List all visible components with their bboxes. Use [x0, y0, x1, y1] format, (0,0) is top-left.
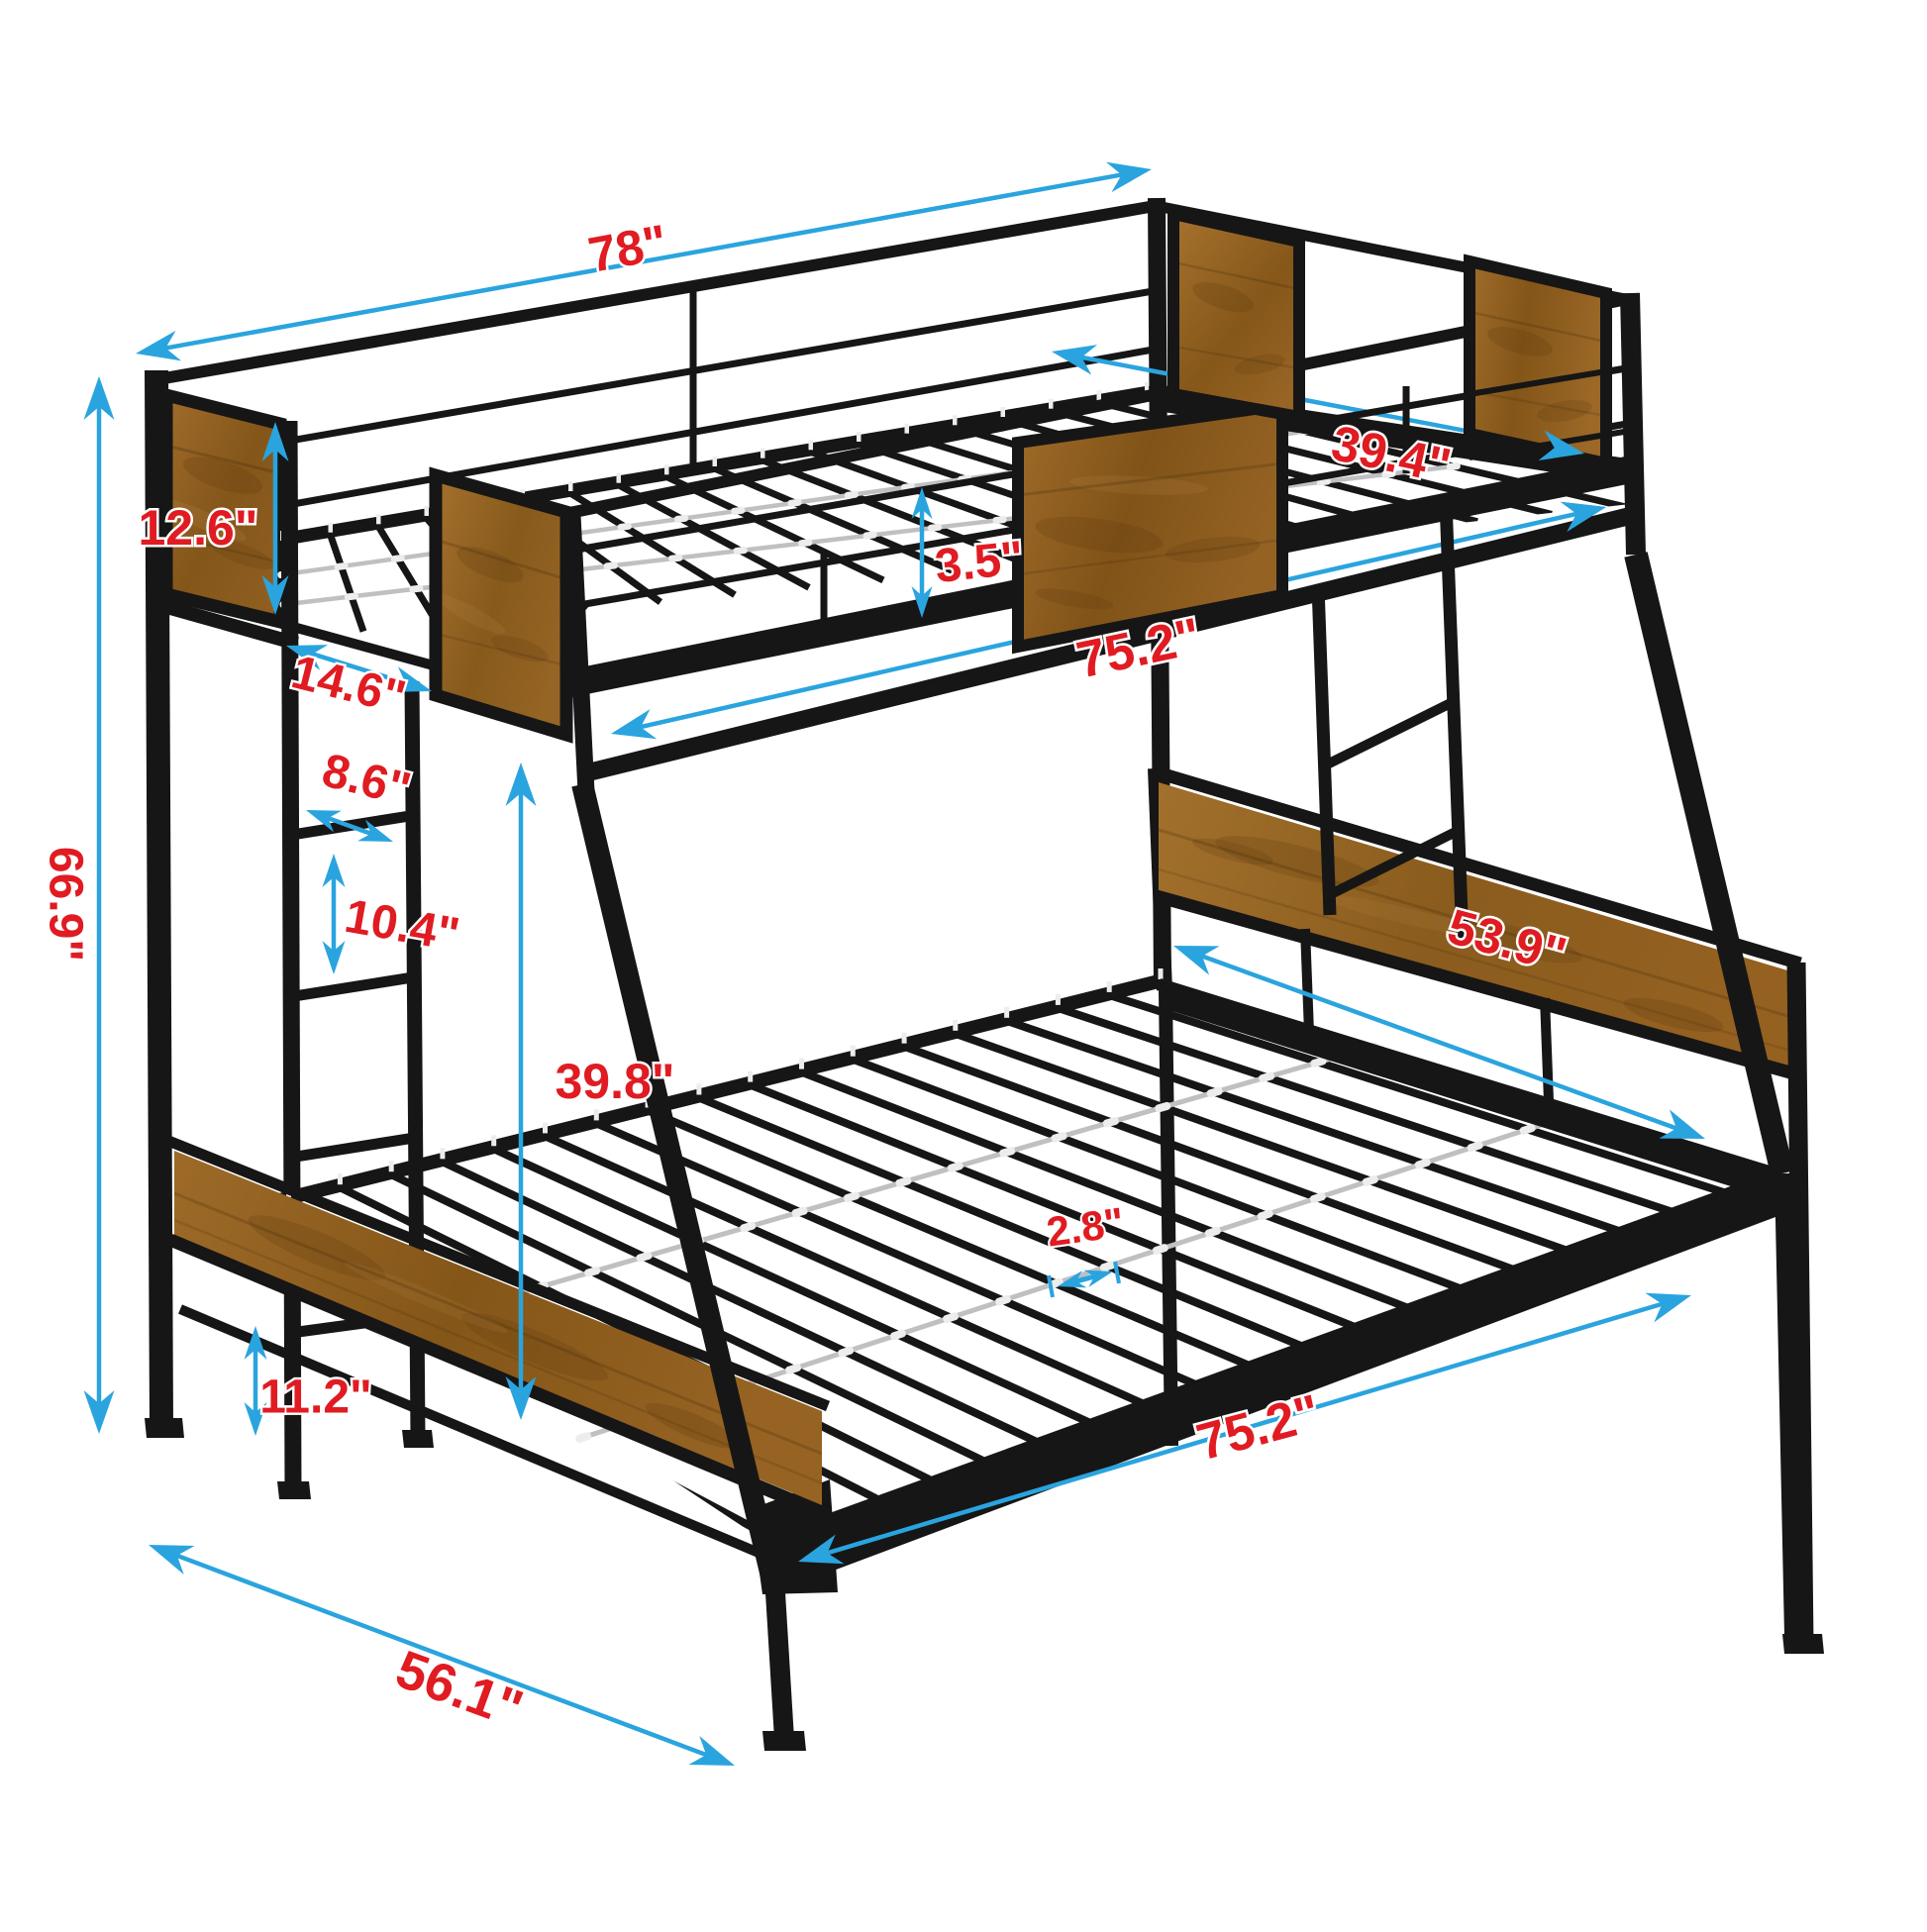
svg-text:39.8": 39.8": [555, 1054, 674, 1109]
svg-text:3.5": 3.5": [933, 532, 1027, 593]
svg-text:11.2": 11.2": [259, 1372, 372, 1424]
svg-text:12.6": 12.6": [138, 500, 257, 556]
svg-text:66.9": 66.9": [40, 847, 92, 962]
